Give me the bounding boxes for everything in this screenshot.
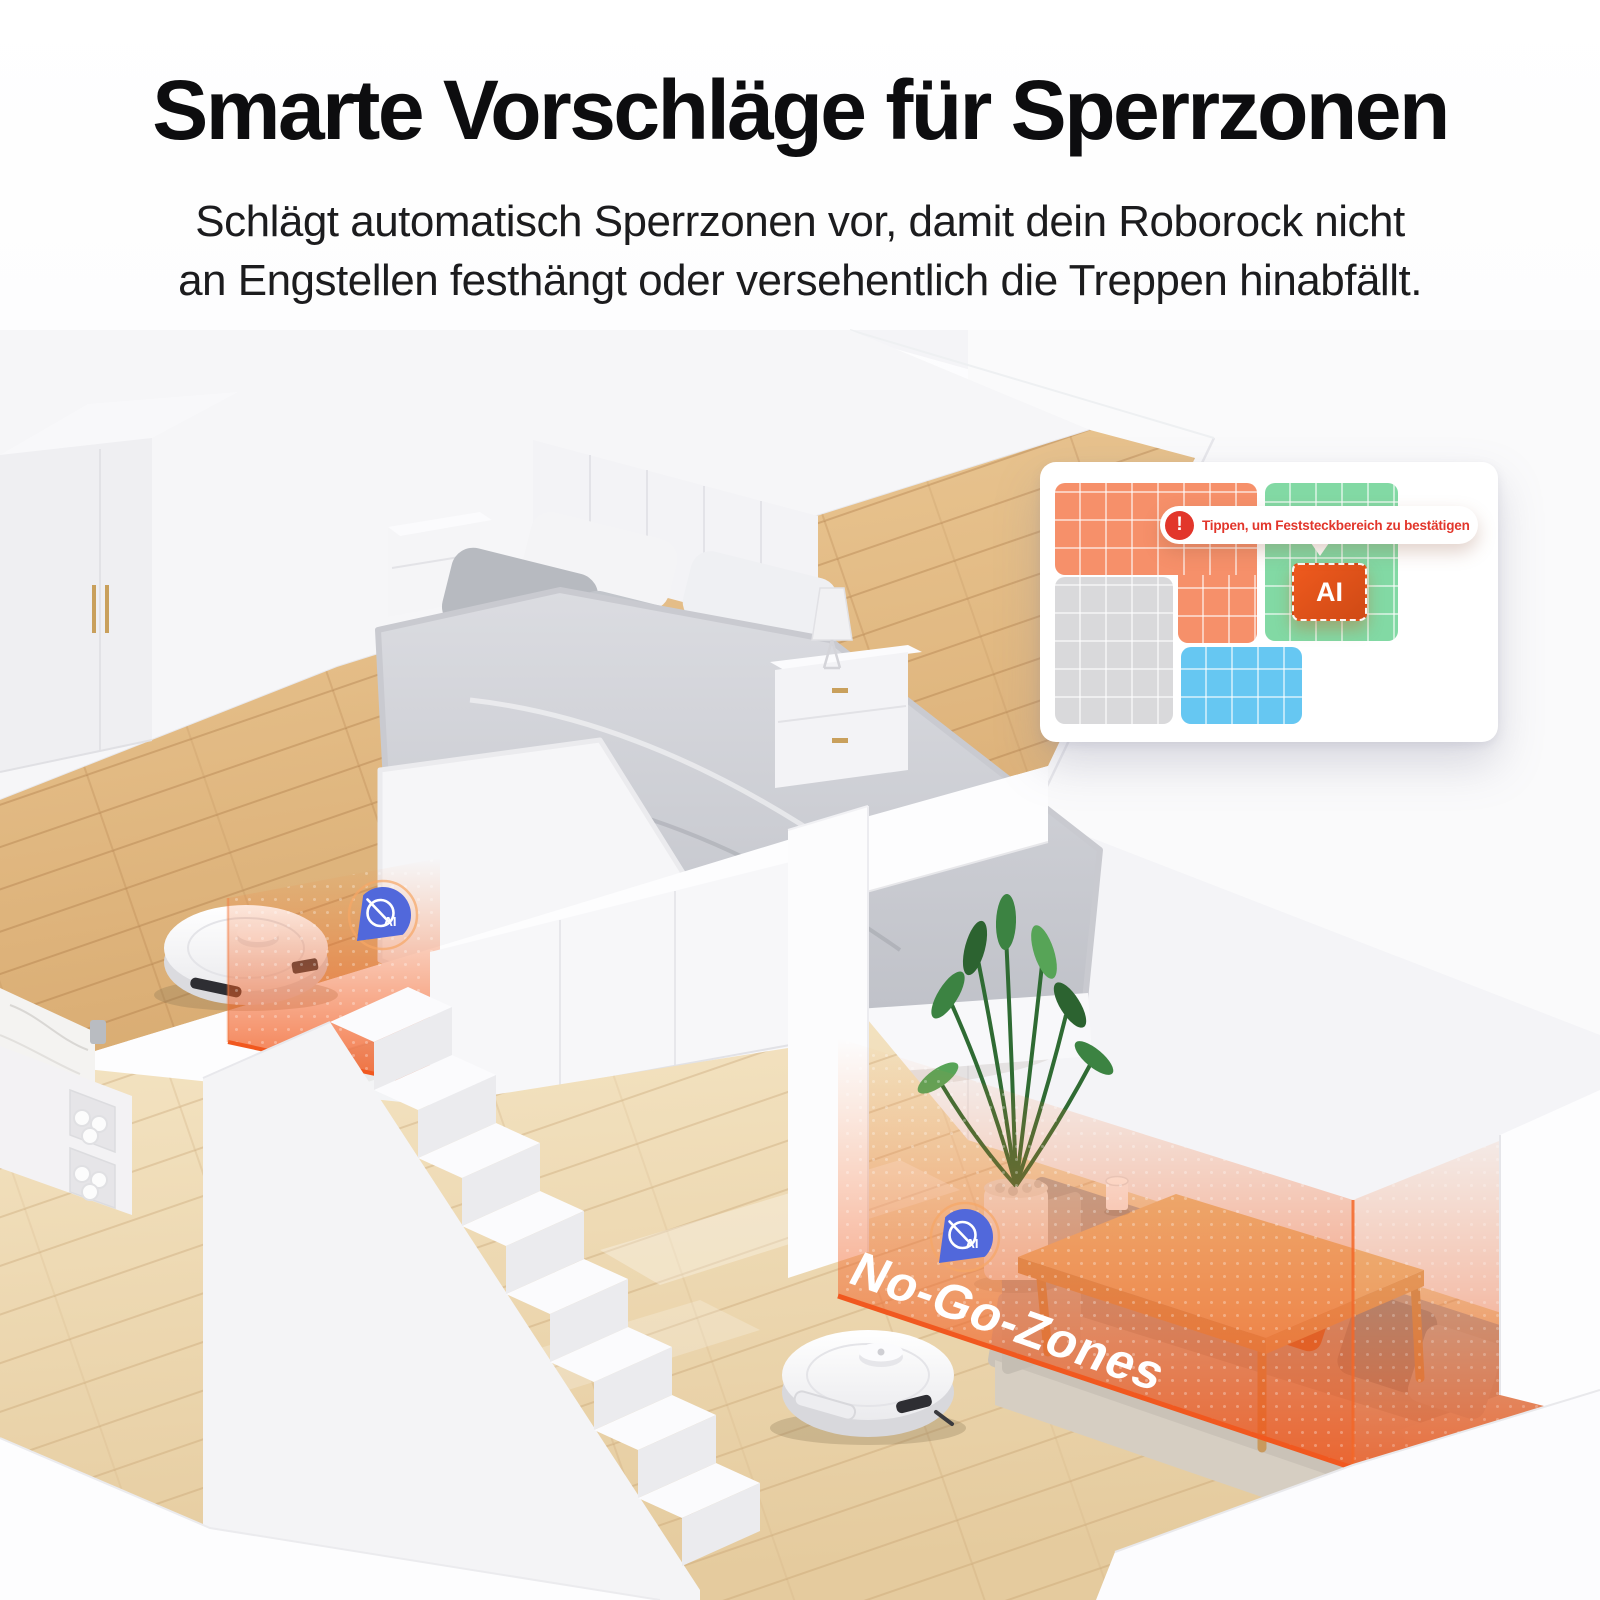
map-zone-orange — [1178, 575, 1257, 643]
faucet — [90, 1020, 106, 1044]
map-zone-gray — [1055, 577, 1173, 724]
ai-stuck-area-box[interactable]: AI — [1292, 563, 1367, 621]
map-card: AI ! Tippen, um Feststeckbereich zu best… — [1040, 462, 1498, 742]
header: Smarte Vorschläge für Sperrzonen Schlägt… — [0, 62, 1600, 310]
wardrobe-handle — [105, 585, 109, 633]
ai-pin-label: AI — [966, 1236, 979, 1251]
page-title: Smarte Vorschläge für Sperrzonen — [0, 62, 1600, 159]
tooltip-pointer — [1311, 543, 1329, 556]
subtitle: Schlägt automatisch Sperrzonen vor, dami… — [0, 193, 1600, 310]
alert-icon: ! — [1165, 511, 1194, 540]
ai-pin-label: AI — [384, 914, 397, 929]
wardrobe-handle — [92, 585, 96, 633]
map-zone-blue — [1181, 647, 1302, 724]
subtitle-line-2: an Engstellen festhängt oder versehentli… — [178, 256, 1422, 305]
tooltip-text: Tippen, um Feststeckbereich zu bestätige… — [1202, 518, 1470, 533]
subtitle-line-1: Schlägt automatisch Sperrzonen vor, dami… — [195, 197, 1405, 246]
promo-page: Smarte Vorschläge für Sperrzonen Schlägt… — [0, 0, 1600, 1600]
right-wall-panel — [1500, 1090, 1600, 1420]
stuck-area-tooltip[interactable]: ! Tippen, um Feststeckbereich zu bestäti… — [1160, 506, 1478, 544]
